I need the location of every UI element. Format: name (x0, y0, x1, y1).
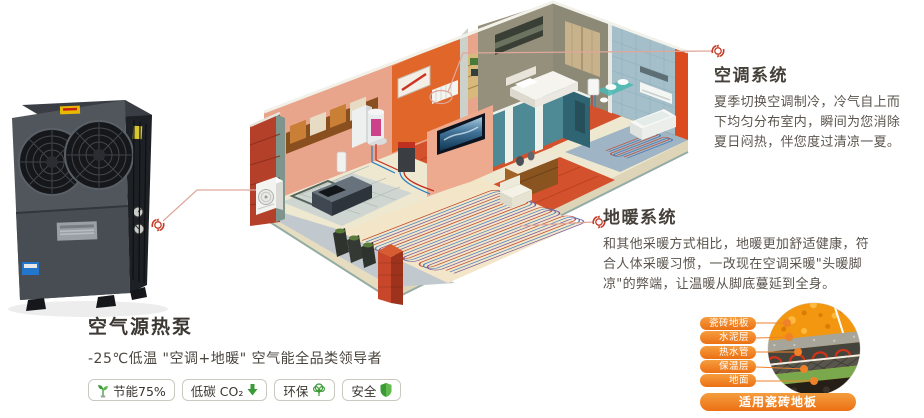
badge-label: 安全 (351, 381, 376, 400)
tree-icon (312, 383, 326, 397)
heat-pump-unit-photo (8, 100, 168, 317)
product-subtitle: -25℃低温 "空调+地暖" 空气能全品类领导者 (88, 348, 401, 368)
fan-right (65, 121, 133, 189)
shield-icon (380, 383, 392, 397)
ac-system-callout: 空调系统 夏季切换空调制冷，冷气自上而下均匀分布室内，瞬间为您消除夏日闷热，伴您… (714, 61, 914, 152)
floor-layer-circle (753, 288, 878, 408)
badge-label: 环保 (283, 381, 308, 400)
layer-label-hot-water-pipe: 热水管 (700, 346, 756, 359)
layer-label-cement: 水泥层 (700, 331, 756, 344)
floor-heating-callout: 地暖系统 和其他采暖方式相比，地暖更加舒适健康，符合人体采暖习惯，一改现在空调采… (603, 203, 903, 294)
layer-label-tile: 瓷砖地板 (700, 317, 756, 330)
product-title: 空气源热泵 (88, 312, 401, 339)
badge-safety: 安全 (342, 379, 401, 401)
sprout-icon (97, 383, 109, 398)
floor-heating-title: 地暖系统 (603, 203, 903, 228)
ac-callout-marker (712, 45, 724, 58)
corner-brick-pillar (378, 244, 403, 305)
layer-diagram-footer: 适用瓷砖地板 (700, 393, 856, 411)
feature-badges: 节能75% 低碳 CO₂ 环保 安全 (88, 379, 401, 401)
ac-system-body: 夏季切换空调制冷，冷气自上而下均匀分布室内，瞬间为您消除夏日闷热，伴您度过清凉一… (714, 93, 902, 152)
promo-canvas: 空调系统 夏季切换空调制冷，冷气自上而下均匀分布室内，瞬间为您消除夏日闷热，伴您… (0, 0, 924, 418)
floor-heating-body: 和其他采暖方式相比，地暖更加舒适健康，符合人体采暖习惯，一改现在空调采暖"头暖脚… (603, 235, 875, 294)
product-info: 空气源热泵 -25℃低温 "空调+地暖" 空气能全品类领导者 节能75% 低碳 … (88, 312, 401, 401)
badge-low-carbon: 低碳 CO₂ (182, 379, 268, 401)
badge-label: 节能75% (113, 381, 166, 400)
layer-label-ground: 地面 (700, 374, 756, 387)
badge-energy-saving: 节能75% (88, 379, 175, 401)
layer-label-insulation: 保温层 (700, 360, 756, 373)
pump-callout-marker (152, 219, 164, 232)
badge-eco-friendly: 环保 (274, 379, 335, 401)
co2-down-arrow-icon (247, 384, 258, 396)
badge-label: 低碳 CO₂ (191, 381, 244, 400)
nameplate (57, 221, 98, 240)
ac-system-title: 空调系统 (714, 61, 914, 86)
